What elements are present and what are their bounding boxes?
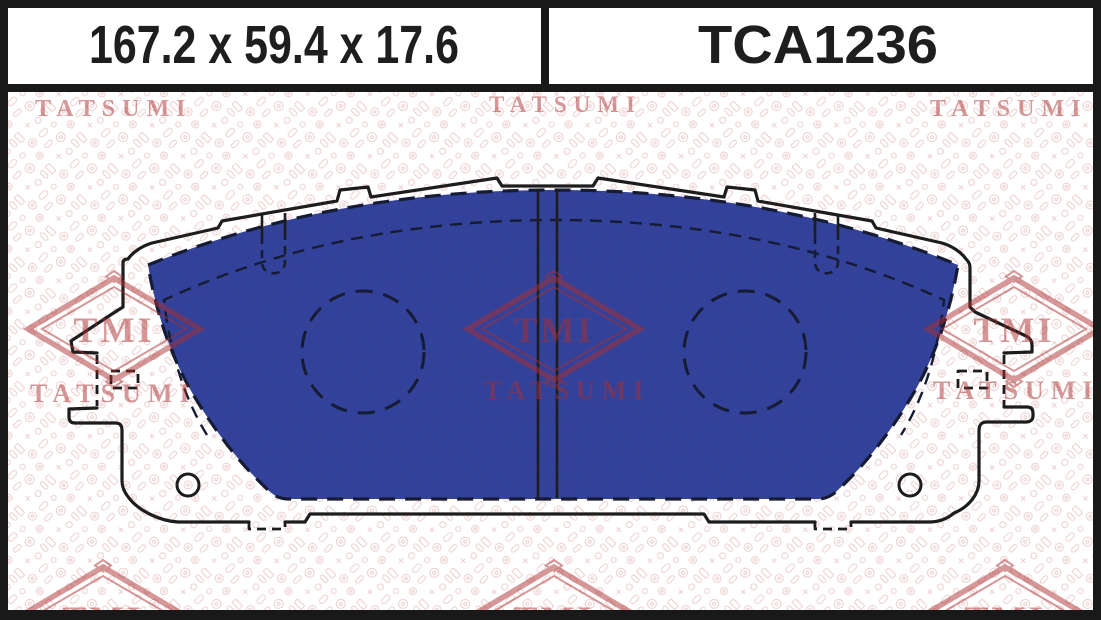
catalog-image: TMI TATSUMI TATSUMI [0, 0, 1101, 620]
header-divider-horizontal [0, 84, 1101, 92]
brand-watermark: TATSUMI [30, 379, 197, 408]
product-diagram: TMI TATSUMI TATSUMI [0, 0, 1101, 620]
brand-watermark: TATSUMI [930, 96, 1087, 122]
brake-pad-drawing: TATSUMI TATSUMI TATSUMI TATSUMI TATSUMI … [8, 92, 1100, 620]
brand-watermark: TATSUMI [933, 376, 1100, 405]
pattern-overlay [8, 92, 1093, 610]
header-divider-vertical [541, 0, 549, 92]
dimensions-label: 167.2 x 59.4 x 17.6 [89, 15, 459, 75]
brand-watermark: TATSUMI [484, 376, 651, 405]
brand-watermark: TATSUMI [489, 92, 642, 117]
part-number-label: TCA1236 [698, 15, 938, 75]
brand-watermark: TATSUMI [35, 96, 192, 122]
